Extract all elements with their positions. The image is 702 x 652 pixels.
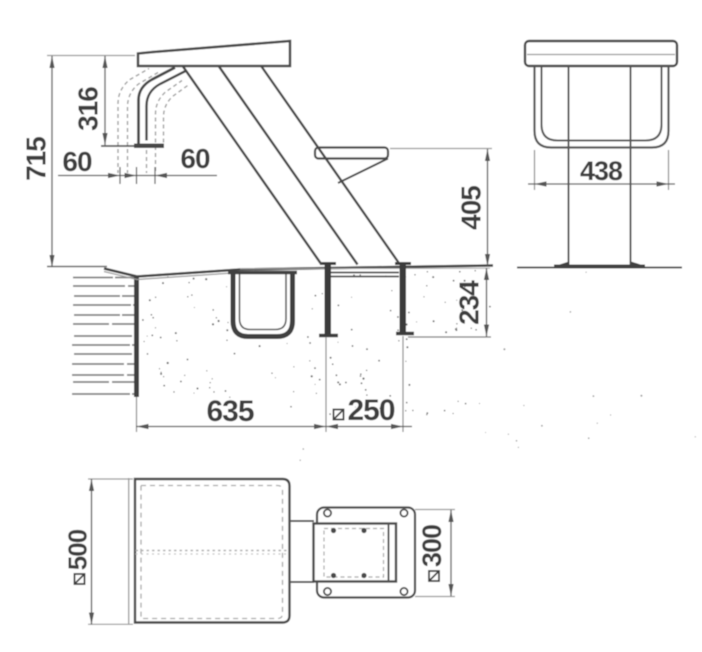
svg-text:60: 60 [62,146,92,177]
svg-text:715: 715 [20,137,51,181]
svg-text:250: 250 [347,394,394,427]
svg-text:316: 316 [72,87,103,131]
svg-text:234: 234 [453,280,484,325]
svg-text:500: 500 [62,529,92,570]
svg-text:300: 300 [417,525,447,567]
svg-text:60: 60 [180,143,210,174]
svg-text:635: 635 [206,395,253,428]
svg-text:438: 438 [580,156,623,186]
svg-text:405: 405 [455,186,486,230]
